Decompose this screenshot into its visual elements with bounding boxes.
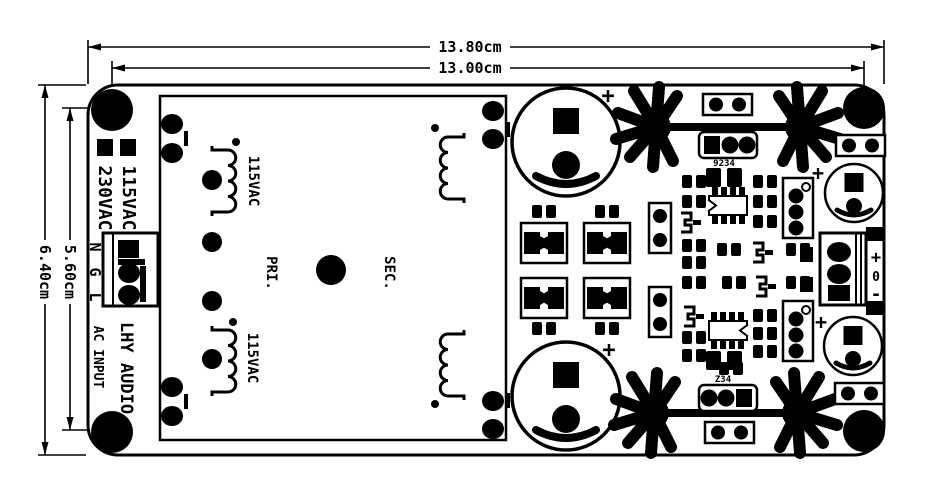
mounting-hole-bottom-left — [91, 411, 133, 453]
mounting-hole-bottom-right — [843, 410, 885, 452]
output-minus-label: - — [871, 284, 882, 305]
secondary-label: SEC. — [381, 256, 397, 290]
dimension-label-height-outer: 6.40cm — [36, 245, 54, 299]
jumper-bottom-center — [705, 422, 754, 443]
mounting-hole-top-left — [91, 89, 133, 131]
jumper-top-center — [703, 94, 752, 115]
voltage-230-square — [97, 139, 113, 156]
jumper-bottom-right — [835, 383, 884, 404]
cap-top-plus: + — [601, 84, 614, 109]
phase-dot — [232, 138, 240, 146]
voltage-115-square — [120, 139, 136, 156]
terminal-label-l: L — [86, 292, 104, 301]
pcb-dimension-drawing: 13.80cm 13.00cm 6.40cm 5.60cm 115VAC 230… — [0, 0, 947, 500]
terminal-label-n: N — [86, 242, 104, 251]
dimension-label-height-holes: 5.60cm — [61, 245, 79, 299]
two-hole-bottom — [649, 287, 671, 337]
small-cap-top-plus: + — [812, 161, 824, 185]
heatsink-bar-top — [656, 123, 800, 131]
connector-3pin-bottom — [783, 301, 813, 361]
regulator-top-code: 9234 — [713, 159, 735, 169]
brand-label: LHY AUDIO — [116, 322, 136, 414]
two-hole-top — [649, 203, 671, 253]
primary-winding-top-label: 115VAC — [245, 156, 261, 207]
small-cap-bottom-plus: + — [815, 310, 827, 334]
primary-label: PRI. — [263, 256, 279, 290]
phase-dot — [431, 400, 439, 408]
mounting-hole-top-right — [843, 87, 885, 129]
connector-3pin-top — [783, 178, 813, 238]
transformer-center-hole — [316, 255, 346, 285]
small-capacitor-bottom — [824, 317, 882, 375]
cap-bottom-plus: + — [602, 338, 615, 363]
voltage-115-label: 115VAC — [118, 165, 139, 230]
output-plus-label: + — [871, 248, 881, 268]
ac-input-label: AC INPUT — [90, 326, 105, 389]
phase-dot — [229, 318, 237, 326]
dimension-label-width-holes: 13.00cm — [438, 59, 501, 77]
voltage-230-label: 230VAC — [94, 165, 115, 230]
small-capacitor-top — [825, 164, 883, 222]
jumper-top-right — [836, 135, 885, 156]
regulator-bottom-code: Z34 — [715, 375, 732, 385]
primary-winding-bottom-label: 115VAC — [244, 333, 260, 384]
output-zero-label: 0 — [872, 270, 880, 285]
diagram-canvas: 13.80cm 13.00cm 6.40cm 5.60cm 115VAC 230… — [0, 0, 947, 500]
dimension-label-width-outer: 13.80cm — [438, 38, 501, 56]
phase-dot — [431, 124, 439, 132]
regulator-bottom — [699, 385, 757, 411]
regulator-top — [699, 132, 757, 158]
ac-input-terminal — [103, 233, 158, 306]
terminal-label-g: G — [86, 267, 104, 276]
